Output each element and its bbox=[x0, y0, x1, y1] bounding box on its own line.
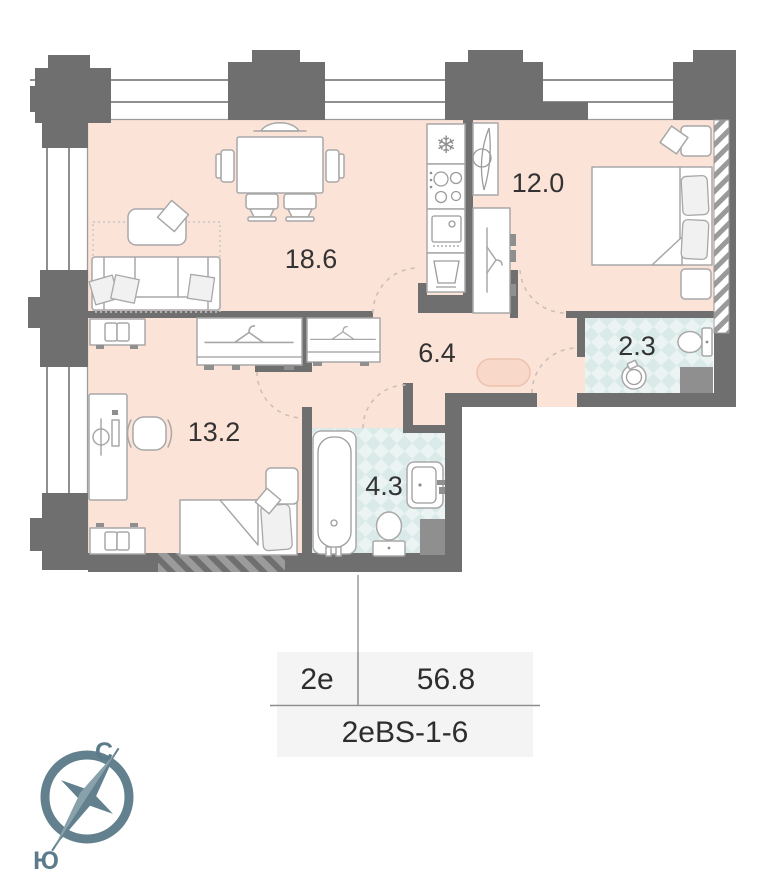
plan-code: 2eBS-1-6 bbox=[342, 716, 469, 749]
wall-bedroom2-right-lower bbox=[302, 407, 312, 555]
entry-mat bbox=[477, 359, 530, 386]
label-wc-area: 2.3 bbox=[618, 331, 656, 361]
bathtub bbox=[313, 431, 356, 556]
total-area: 56.8 bbox=[417, 663, 475, 696]
wardrobe-bedroom2 bbox=[197, 318, 302, 370]
fridge: ❄ bbox=[427, 124, 465, 164]
label-bedroom-area: 12.0 bbox=[512, 168, 565, 198]
hatched-wall-right bbox=[714, 120, 729, 333]
floorplan-canvas: ❄ bbox=[0, 0, 760, 890]
wall-bedroom-bottom bbox=[566, 311, 736, 318]
bookshelf-top bbox=[90, 319, 145, 349]
cooktop bbox=[427, 164, 465, 209]
fridge-snowflake-icon: ❄ bbox=[436, 131, 456, 159]
pillow-1 bbox=[681, 175, 709, 215]
label-bedroom2-area: 13.2 bbox=[188, 417, 241, 447]
wall-bathroom-stub bbox=[403, 383, 413, 428]
dining-chair-bottom-2 bbox=[284, 194, 316, 221]
single-bed bbox=[180, 500, 297, 555]
info-table: 2e 56.8 2eBS-1-6 bbox=[270, 575, 540, 757]
tall-cabinet bbox=[473, 123, 498, 195]
top-window-band bbox=[30, 78, 736, 120]
wall-wc-left bbox=[577, 318, 585, 357]
pier-top-right bbox=[673, 50, 736, 120]
desk bbox=[89, 394, 127, 500]
dining-chair-right-back bbox=[339, 154, 344, 178]
double-bed bbox=[592, 167, 712, 265]
wall-right-solid bbox=[714, 333, 736, 393]
pier-top-2 bbox=[228, 50, 325, 120]
compass-south-label: Ю bbox=[33, 847, 59, 875]
oven bbox=[427, 209, 465, 253]
compass-rose: С Ю bbox=[26, 731, 144, 875]
label-bathroom-area: 4.3 bbox=[365, 471, 403, 501]
hall-wardrobe-tall bbox=[473, 208, 516, 313]
kitchen-sink bbox=[427, 253, 465, 292]
pier-left-bottom bbox=[30, 493, 88, 570]
sofa bbox=[89, 257, 220, 310]
pier-top-3 bbox=[445, 50, 543, 120]
pier-left-middle bbox=[28, 270, 88, 367]
apartment-type: 2e bbox=[300, 663, 333, 696]
wall-bedroom2-door-stub bbox=[255, 365, 302, 372]
floorplan-page: ❄ bbox=[0, 0, 760, 890]
compass-north-label: С bbox=[95, 738, 113, 766]
sofa-pillow-2 bbox=[111, 275, 139, 303]
bookshelf-bottom bbox=[90, 523, 145, 554]
wall-hall-bottom-left bbox=[455, 393, 537, 407]
dining-chair-bottom-1 bbox=[246, 194, 278, 221]
label-living-area: 18.6 bbox=[285, 244, 338, 274]
wall-bathroom-right bbox=[445, 393, 462, 572]
desk-chair bbox=[128, 417, 172, 450]
dining-table bbox=[237, 137, 323, 193]
nightstand-bottom bbox=[681, 269, 711, 299]
wall-filler-top bbox=[543, 102, 588, 120]
vent-shaft-bathroom bbox=[420, 519, 445, 555]
washbasin-bathroom bbox=[407, 462, 445, 508]
entry-threshold bbox=[537, 393, 577, 407]
dining-chair-left bbox=[221, 150, 234, 182]
vent-shaft-wc bbox=[680, 367, 713, 393]
hall-wardrobe bbox=[307, 318, 380, 366]
pillow-2 bbox=[681, 219, 709, 259]
dining-chair-left-back bbox=[216, 154, 221, 178]
wall-right-outer bbox=[729, 120, 736, 333]
dining-chair-right bbox=[326, 150, 339, 182]
label-hall-area: 6.4 bbox=[418, 338, 456, 368]
hatched-wall-bottom bbox=[158, 553, 285, 572]
wc-threshold bbox=[577, 357, 585, 393]
sofa-pillow-3 bbox=[187, 274, 214, 301]
wall-hall-bottom-right bbox=[577, 393, 736, 407]
wall-kitchen-stub bbox=[418, 283, 427, 313]
